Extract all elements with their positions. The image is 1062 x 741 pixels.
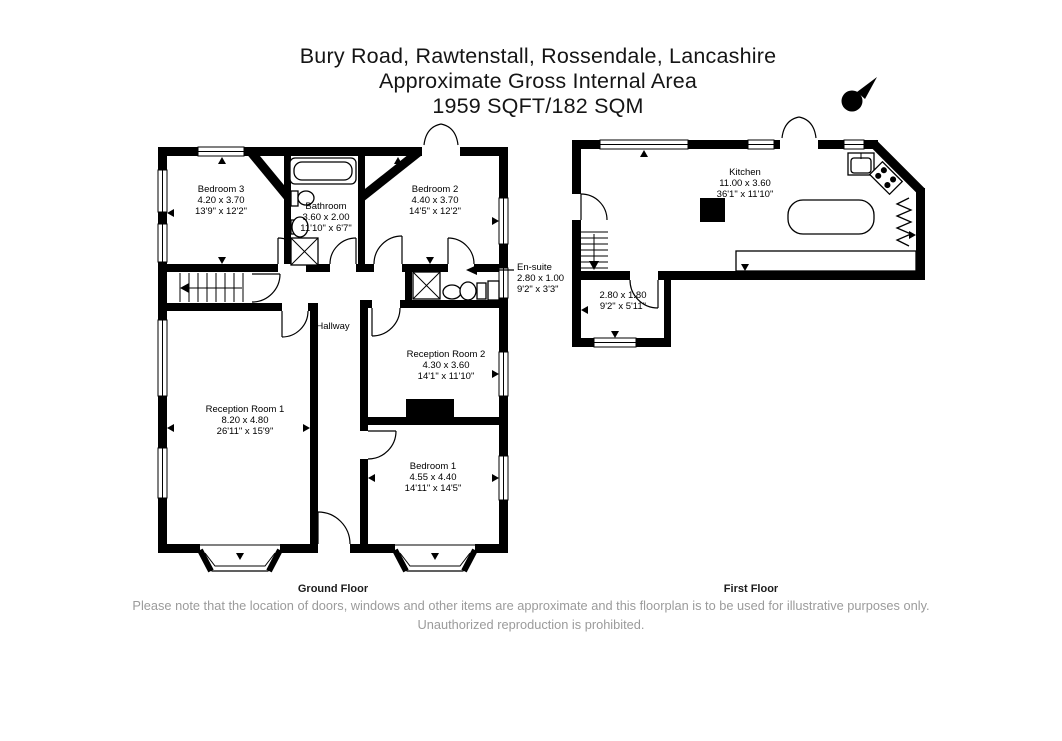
compass-icon: N [842,77,878,112]
french-door-ground [424,124,458,145]
kitchen-chimney [700,198,725,222]
room-label-reception-1: Reception Room 1 8.20 x 4.80 26'11" x 15… [206,404,285,437]
kitchen-island [788,200,874,234]
room-label-ensuite: En-suite 2.80 x 1.00 9'2" x 3'3" [517,262,564,295]
toilet-ensuite [460,281,499,300]
french-door-first [782,117,816,138]
kitchen-radiator-zigzag [897,198,911,246]
kitchen-counter [736,251,916,271]
floorplan-page: Bury Road, Rawtenstall, Rossendale, Lanc… [0,0,1062,741]
room-label-kitchen: Kitchen 11.00 x 3.60 36'1" x 11'10" [717,167,774,200]
shower-bathroom [291,238,318,265]
first-floor-label: First Floor [724,583,778,595]
stairs-first [581,232,608,270]
room-label-store: 2.80 x 1.80 9'2" x 5'11" [599,290,646,312]
shower-ensuite [413,272,440,299]
disclaimer-text: Please note that the location of doors, … [121,596,941,634]
room-label-reception-2: Reception Room 2 4.30 x 3.60 14'1" x 11'… [407,349,486,382]
bathtub [290,158,356,184]
room-label-hallway: Hallway [316,321,349,332]
ground-floor-label: Ground Floor [298,583,368,595]
room-label-bedroom-1: Bedroom 1 4.55 x 4.40 14'11" x 14'5" [405,461,462,494]
kitchen-sink [848,153,874,175]
room-label-bathroom: Bathroom 3.60 x 2.00 11'10" x 6'7" [300,201,351,234]
sink-ensuite [443,285,461,299]
stairs-ground [180,273,243,302]
room-label-bedroom-2: Bedroom 2 4.40 x 3.70 14'5" x 12'2" [409,184,461,217]
room-label-bedroom-3: Bedroom 3 4.20 x 3.70 13'9" x 12'2" [195,184,247,217]
